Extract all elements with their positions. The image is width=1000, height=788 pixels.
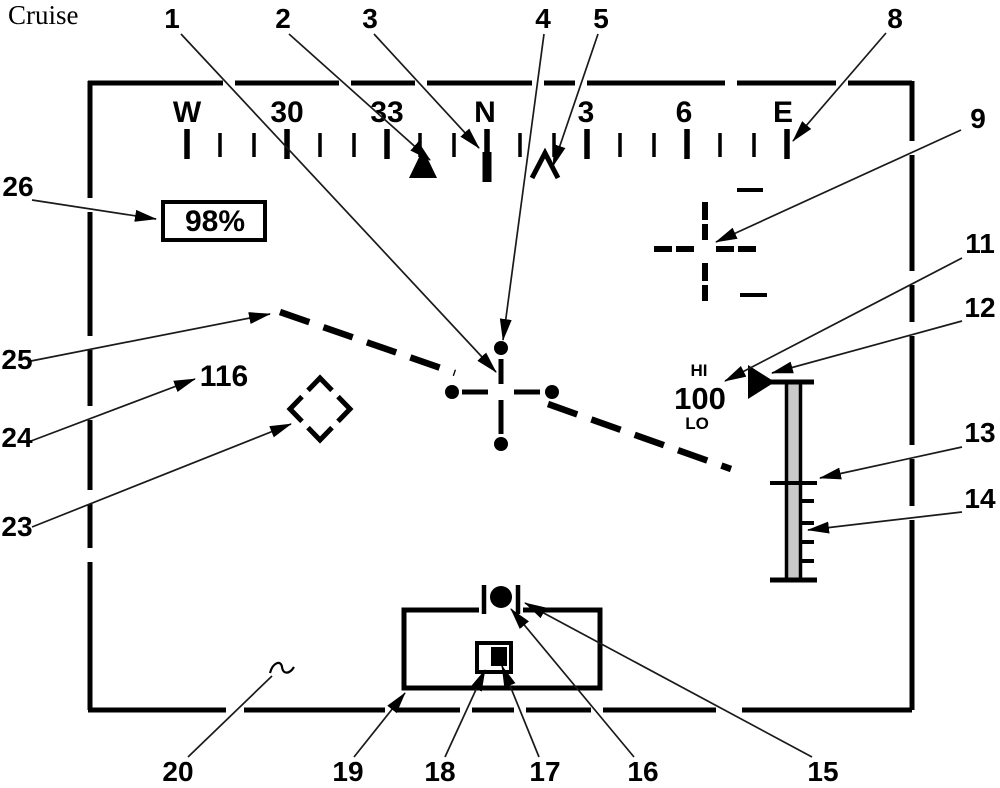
altitude-scale-minor-ticks <box>801 501 814 561</box>
callout-20-label: 20 <box>162 756 193 787</box>
callout-1: 1 <box>164 3 496 372</box>
callout-15: 15 <box>525 603 839 787</box>
callout-4: 4 <box>503 3 551 340</box>
callout-9: 9 <box>716 103 986 242</box>
reticle-dot-right <box>545 385 559 399</box>
callout-2-label: 2 <box>275 3 291 34</box>
callout-15-label: 15 <box>807 756 838 787</box>
callout-24: 24 <box>1 379 195 453</box>
callout-9-label: 9 <box>970 103 986 134</box>
cued-los-reticle-icon <box>654 190 767 301</box>
heading-label-6: 6 <box>676 96 693 129</box>
heading-label-N: N <box>474 96 496 129</box>
los-reticle-icon <box>445 341 559 451</box>
hud-cruise-figure: Cruise W 30 33 N 3 6 E 98% <box>0 0 1000 788</box>
steering-diamond-icon <box>290 378 350 440</box>
callout-13: 13 <box>820 417 996 478</box>
altitude-scale-bar <box>766 382 817 580</box>
callout-23: 23 <box>1 424 291 542</box>
callout-19: 19 <box>332 693 405 787</box>
callout-13-label: 13 <box>964 417 995 448</box>
callout-4-label: 4 <box>535 3 551 34</box>
callout-26: 26 <box>2 171 156 219</box>
callout-16-label: 16 <box>627 756 658 787</box>
torque-indicator: 98% <box>163 202 265 240</box>
altitude-hi-label: HI <box>691 361 708 380</box>
callout-3-label: 3 <box>362 3 378 34</box>
heading-label-30: 30 <box>270 96 303 129</box>
heading-label-33: 33 <box>370 96 403 129</box>
reticle-dot-left <box>445 385 459 399</box>
squiggle-symbol-icon <box>270 663 294 673</box>
callout-12: 12 <box>772 292 996 373</box>
hud-figure-svg: Cruise W 30 33 N 3 6 E 98% <box>0 0 1000 788</box>
callout-14: 14 <box>808 483 996 530</box>
altitude-lo-label: LO <box>685 414 709 433</box>
callout-5-label: 5 <box>593 3 609 34</box>
torque-value: 98% <box>185 205 245 238</box>
callout-1-label: 1 <box>164 3 180 34</box>
callout-24-label: 24 <box>1 422 33 453</box>
callout-11-label: 11 <box>965 228 995 259</box>
los-reticle-cross <box>462 359 540 434</box>
heading-label-3: 3 <box>578 96 595 129</box>
callout-17-label: 17 <box>529 756 560 787</box>
callout-12-label: 12 <box>964 292 995 323</box>
altitude-value: 100 <box>674 381 726 416</box>
trim-ball-icon <box>490 586 512 608</box>
inner-square-icon <box>491 647 507 666</box>
airspeed-value: 116 <box>200 360 248 393</box>
reticle-dot-top <box>494 341 508 355</box>
page-title: Cruise <box>8 0 79 30</box>
fov-corner-marks <box>737 190 767 295</box>
callout-19-label: 19 <box>332 756 363 787</box>
heading-label-E: E <box>773 96 793 129</box>
callout-20: 20 <box>162 676 272 787</box>
callouts: 1 2 3 4 5 8 9 11 <box>1 3 996 787</box>
callout-14-label: 14 <box>964 483 996 514</box>
heading-tape: W 30 33 N 3 6 E <box>173 96 793 182</box>
cued-los-dashes <box>654 202 756 301</box>
callout-25-label: 25 <box>1 344 32 375</box>
callout-8: 8 <box>793 3 903 141</box>
reticle-dot-bottom <box>494 437 508 451</box>
heading-label-W: W <box>173 96 202 129</box>
callout-11: 11 <box>725 228 995 381</box>
bottom-panel <box>404 585 600 688</box>
altitude-indicator: HI 100 LO <box>674 361 817 580</box>
heading-index-lubber-bar <box>483 152 492 182</box>
callout-8-label: 8 <box>887 3 903 34</box>
callout-18-label: 18 <box>424 756 455 787</box>
callout-17: 17 <box>502 666 561 787</box>
callout-23-label: 23 <box>1 511 32 542</box>
callout-26-label: 26 <box>2 171 33 202</box>
